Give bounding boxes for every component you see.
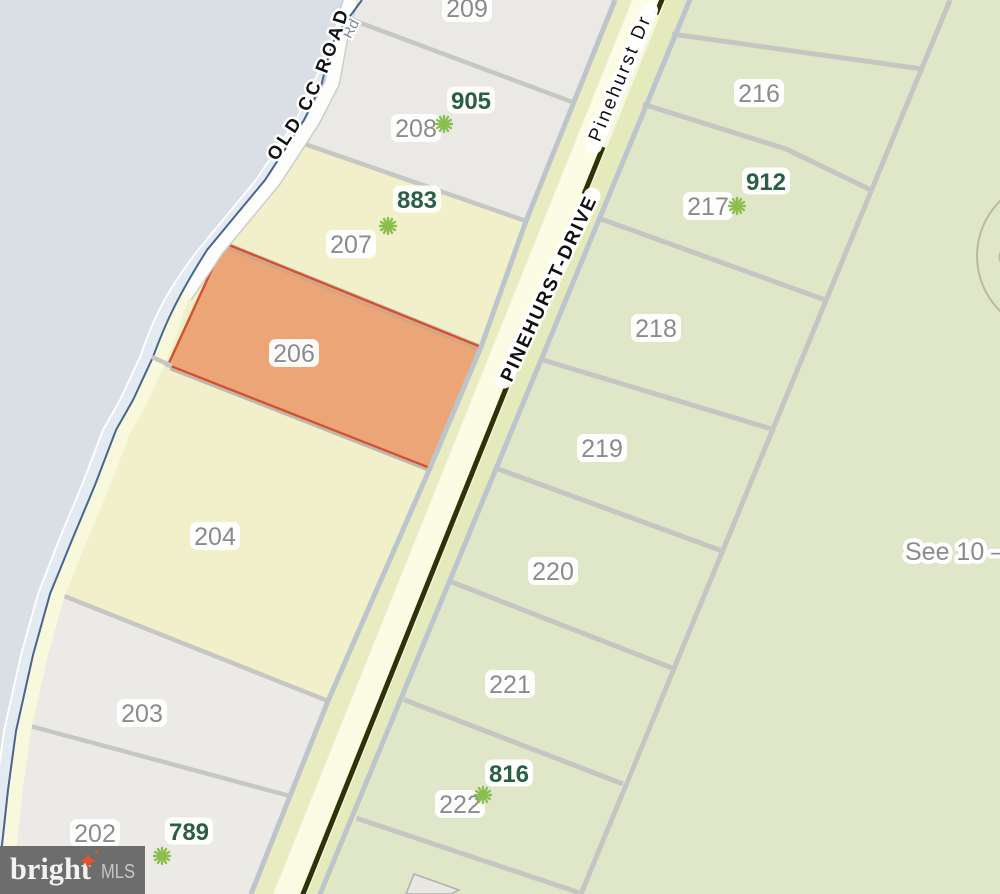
svg-text:789: 789 [169,819,209,846]
svg-text:209: 209 [446,0,488,23]
svg-text:220: 220 [532,558,574,586]
svg-text:See 10 –: See 10 – [905,538,1000,566]
svg-text:816: 816 [489,761,529,788]
svg-text:206: 206 [273,340,315,368]
svg-text:883: 883 [397,187,437,214]
svg-text:208: 208 [395,115,437,143]
svg-text:217: 217 [687,193,729,221]
svg-text:218: 218 [635,315,677,343]
svg-text:203: 203 [121,700,163,728]
svg-text:219: 219 [581,435,623,463]
svg-text:216: 216 [738,80,780,108]
svg-text:207: 207 [330,231,372,259]
svg-text:905: 905 [451,88,491,115]
svg-text:221: 221 [489,671,531,699]
svg-text:MLS: MLS [101,861,135,883]
svg-text:204: 204 [194,523,236,551]
svg-text:bright: bright [10,851,92,886]
svg-text:912: 912 [746,169,786,196]
svg-text:202: 202 [74,820,116,848]
